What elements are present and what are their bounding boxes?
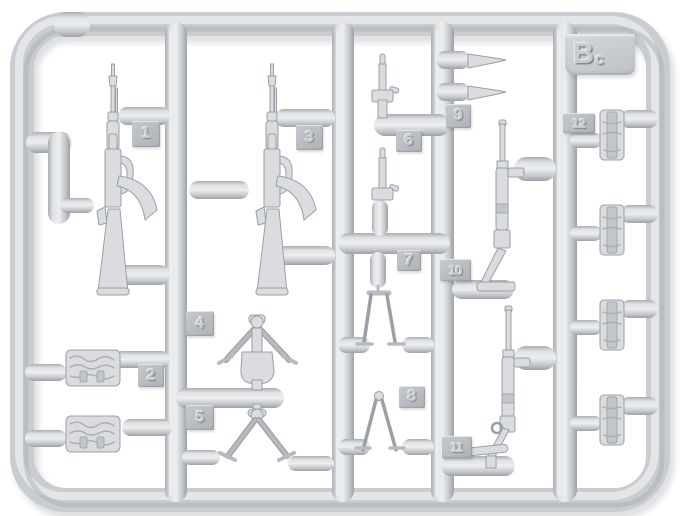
sprue-illustration: 1 2 3 4 5 6 7 8 9 10 11 12 Bc — [0, 0, 684, 516]
part-number-tag-4: 4 — [186, 311, 214, 336]
part-number-tag-10: 10 — [440, 259, 471, 281]
part-8-folded-bipods — [356, 286, 404, 450]
frame-end-cap — [54, 12, 90, 37]
part-5-bipod — [220, 404, 294, 460]
sprue-label-sub: c — [595, 52, 604, 68]
part-number-tag-12: 12 — [563, 113, 595, 133]
part-11-submachine-gun — [468, 306, 530, 468]
sprue-label-main: B — [573, 40, 594, 69]
part-number-tag-3: 3 — [296, 125, 323, 150]
part-1-assault-rifle — [97, 64, 157, 295]
part-4-bipod-mount — [219, 315, 296, 390]
part-number-tag-7: 7 — [397, 250, 421, 271]
part-7-rod — [372, 148, 399, 200]
sprue-artwork — [0, 0, 684, 516]
part-number-tag-2: 2 — [138, 364, 164, 387]
part-number-tag-9: 9 — [446, 104, 471, 128]
part-2-ammo-pouches — [66, 350, 120, 452]
part-number-tag-5: 5 — [186, 405, 214, 430]
part-number-tag-11: 11 — [442, 436, 472, 458]
part-12-magazine-pouches — [600, 110, 624, 445]
part-6-rod — [372, 54, 399, 118]
part-number-tag-6: 6 — [396, 130, 422, 152]
part-number-tag-1: 1 — [132, 121, 160, 147]
part-number-tag-8: 8 — [399, 386, 425, 408]
sprue-label-tab: Bc — [565, 34, 635, 75]
part-10-submachine-gun — [477, 120, 524, 291]
